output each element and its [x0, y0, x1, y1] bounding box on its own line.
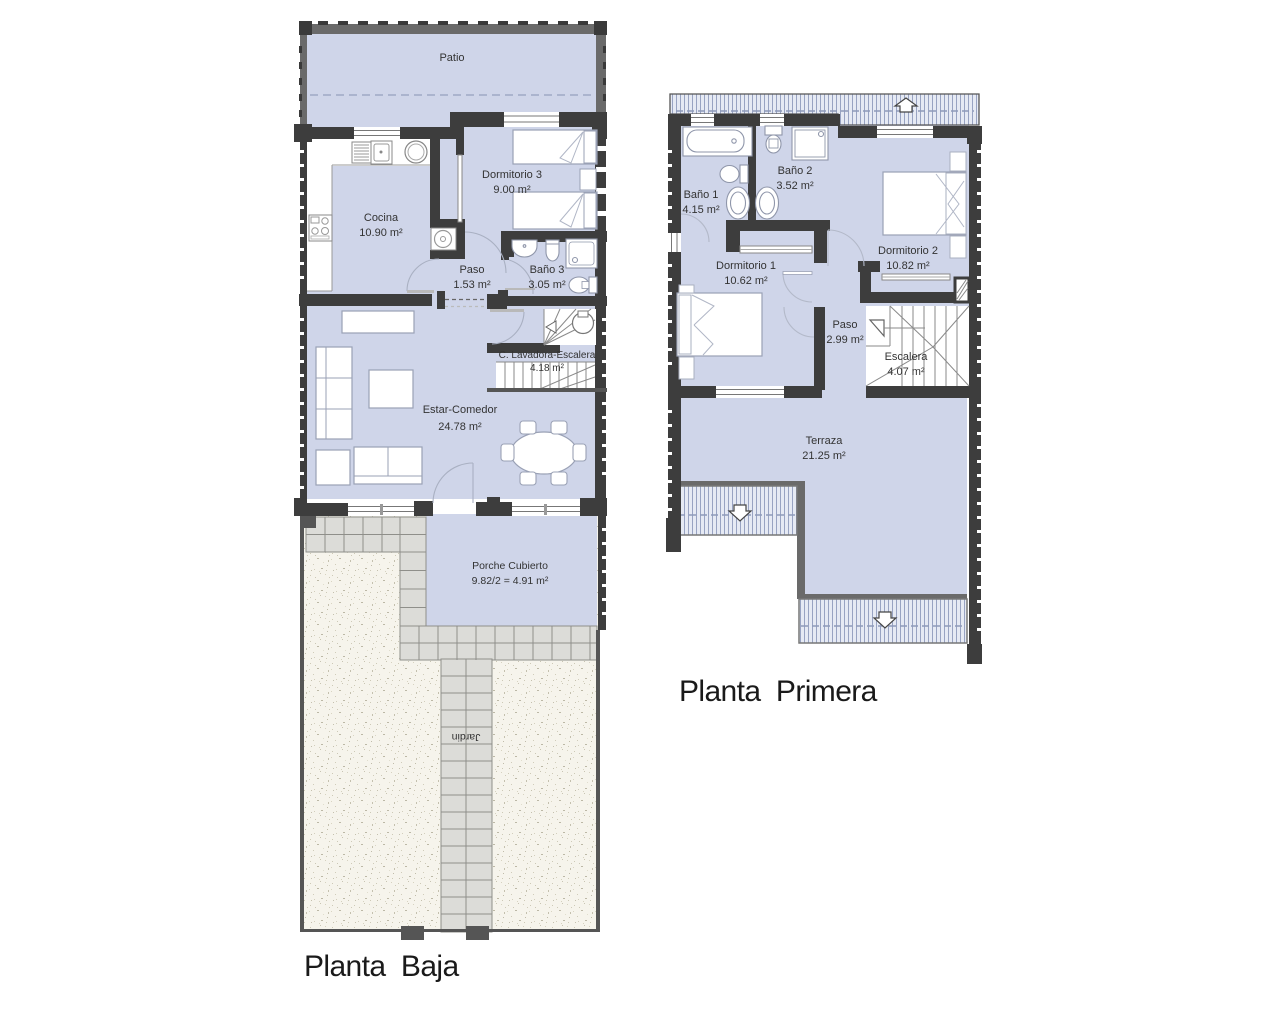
svg-text:21.25 m²: 21.25 m² [802, 450, 846, 462]
svg-text:4.18 m²: 4.18 m² [530, 363, 565, 374]
svg-text:Terraza: Terraza [806, 435, 844, 447]
svg-text:3.05 m²: 3.05 m² [528, 279, 566, 291]
svg-text:9.00 m²: 9.00 m² [493, 184, 531, 196]
svg-text:10.62 m²: 10.62 m² [724, 275, 768, 287]
svg-text:Baño 1: Baño 1 [684, 189, 719, 201]
svg-text:Planta Baja: Planta Baja [304, 950, 459, 983]
svg-text:10.90 m²: 10.90 m² [359, 227, 403, 239]
svg-text:10.82 m²: 10.82 m² [886, 260, 930, 272]
svg-text:2.99 m²: 2.99 m² [826, 334, 864, 346]
svg-text:Paso: Paso [459, 264, 484, 276]
svg-text:Patio: Patio [439, 52, 464, 64]
svg-text:C. Lavadora-Escalera: C. Lavadora-Escalera [499, 350, 596, 361]
svg-text:4.15 m²: 4.15 m² [682, 204, 720, 216]
svg-text:Dormitorio 3: Dormitorio 3 [482, 169, 542, 181]
svg-text:24.78 m²: 24.78 m² [438, 421, 482, 433]
svg-text:Estar-Comedor: Estar-Comedor [423, 404, 498, 416]
svg-text:3.52 m²: 3.52 m² [776, 180, 814, 192]
svg-text:1.53 m²: 1.53 m² [453, 279, 491, 291]
svg-text:Cocina: Cocina [364, 212, 399, 224]
svg-text:9.82/2 = 4.91 m²: 9.82/2 = 4.91 m² [472, 575, 549, 587]
svg-text:4.07 m²: 4.07 m² [887, 366, 925, 378]
svg-text:Baño 3: Baño 3 [530, 264, 565, 276]
svg-text:Planta Primera: Planta Primera [679, 675, 878, 708]
svg-text:Jardin: Jardin [452, 731, 481, 743]
svg-text:Paso: Paso [832, 319, 857, 331]
svg-text:Baño 2: Baño 2 [778, 165, 813, 177]
svg-text:Porche Cubierto: Porche Cubierto [472, 560, 548, 572]
svg-text:Dormitorio 1: Dormitorio 1 [716, 260, 776, 272]
svg-text:Dormitorio 2: Dormitorio 2 [878, 245, 938, 257]
svg-text:Escalera: Escalera [885, 351, 929, 363]
